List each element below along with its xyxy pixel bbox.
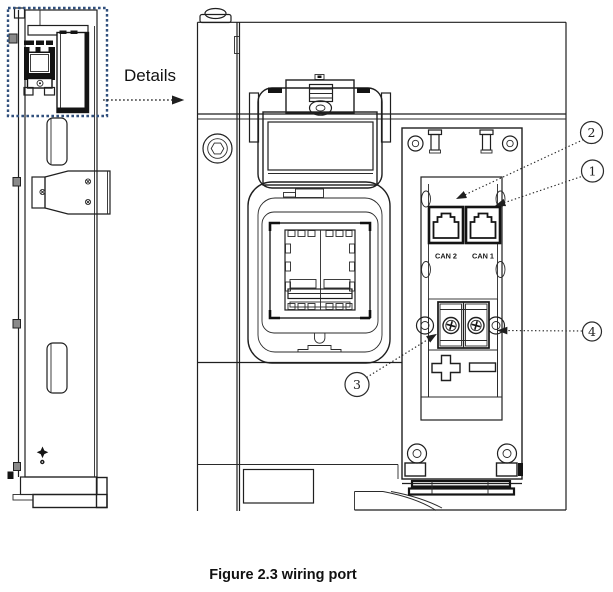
bottom-notch xyxy=(315,333,325,343)
standoff-post-right xyxy=(480,130,493,153)
connector-screws xyxy=(40,179,91,205)
wiring-port-diagram: Details xyxy=(0,0,613,592)
figure-caption: Figure 2.3 wiring port xyxy=(209,567,357,583)
center-module xyxy=(270,223,370,318)
can2-port xyxy=(429,207,463,243)
mini-breaker-module xyxy=(24,47,55,95)
ground-symbols xyxy=(37,447,49,465)
callout-3: 3 xyxy=(345,373,369,397)
panel-top-screw-right xyxy=(503,136,518,151)
left-device-side-view xyxy=(8,8,111,508)
lower-body xyxy=(248,182,390,363)
callout-1-arrow xyxy=(496,176,585,206)
star-symbol xyxy=(37,447,49,459)
callout-4-number: 4 xyxy=(588,324,596,339)
mini-side-panel xyxy=(57,31,89,114)
breaker-assembly xyxy=(248,75,391,364)
lower-slot xyxy=(47,343,67,393)
callout-4: 4 xyxy=(583,322,602,341)
callout-2-number: 2 xyxy=(588,125,596,140)
top-actuator xyxy=(286,75,354,116)
panel-bottom-screw-right xyxy=(498,444,517,463)
side-connector xyxy=(32,171,110,214)
panel-top-screw-left xyxy=(408,136,423,151)
wiring-port-figure: Details xyxy=(0,0,613,592)
callout-2-arrow xyxy=(457,140,584,199)
module-ladder xyxy=(288,280,352,308)
details-callout: Details xyxy=(103,66,183,100)
callout-3-arrow xyxy=(367,335,437,378)
wire-grommet-left xyxy=(417,317,434,334)
left-device-top-assembly xyxy=(24,26,89,114)
left-tab xyxy=(268,88,282,94)
right-bracket xyxy=(382,93,391,142)
upper-slot xyxy=(47,118,67,165)
panel-foot-right xyxy=(497,463,518,476)
panel-bottom-screw-left xyxy=(408,444,427,463)
can1-label: CAN 1 xyxy=(472,252,494,261)
bottom-step-tab xyxy=(298,346,341,353)
rail-bolt xyxy=(203,134,232,163)
left-rail-cap xyxy=(15,8,25,18)
minus-symbol xyxy=(470,363,496,372)
can2-label: CAN 2 xyxy=(435,252,457,261)
callout-1-number: 1 xyxy=(589,164,597,179)
panel-foot-left xyxy=(405,463,426,476)
lower-left-box xyxy=(244,470,314,504)
rating-label-marks xyxy=(24,41,53,46)
terminal-screw-left xyxy=(443,318,459,334)
module-ticks xyxy=(286,231,355,310)
standoff-post-left xyxy=(429,130,442,153)
window-panel xyxy=(263,112,377,185)
plus-symbol xyxy=(432,356,460,381)
callout-1: 1 xyxy=(582,160,604,182)
terminal-screw-right xyxy=(468,318,484,334)
can1-port xyxy=(466,207,500,243)
right-tab xyxy=(357,88,370,94)
terminal-block xyxy=(438,302,489,348)
polarity-symbols xyxy=(432,356,496,381)
callout-2: 2 xyxy=(581,122,603,144)
left-bracket xyxy=(250,93,259,142)
detail-front-view: CAN 2 CAN 1 xyxy=(198,9,604,512)
wiring-panel: CAN 2 CAN 1 xyxy=(402,128,523,495)
left-device-base xyxy=(13,477,107,508)
callout-3-number: 3 xyxy=(353,377,361,392)
upper-body xyxy=(258,88,382,188)
rail-dome xyxy=(205,9,226,19)
details-label: Details xyxy=(124,66,176,85)
callout-4-arrow xyxy=(498,331,582,332)
